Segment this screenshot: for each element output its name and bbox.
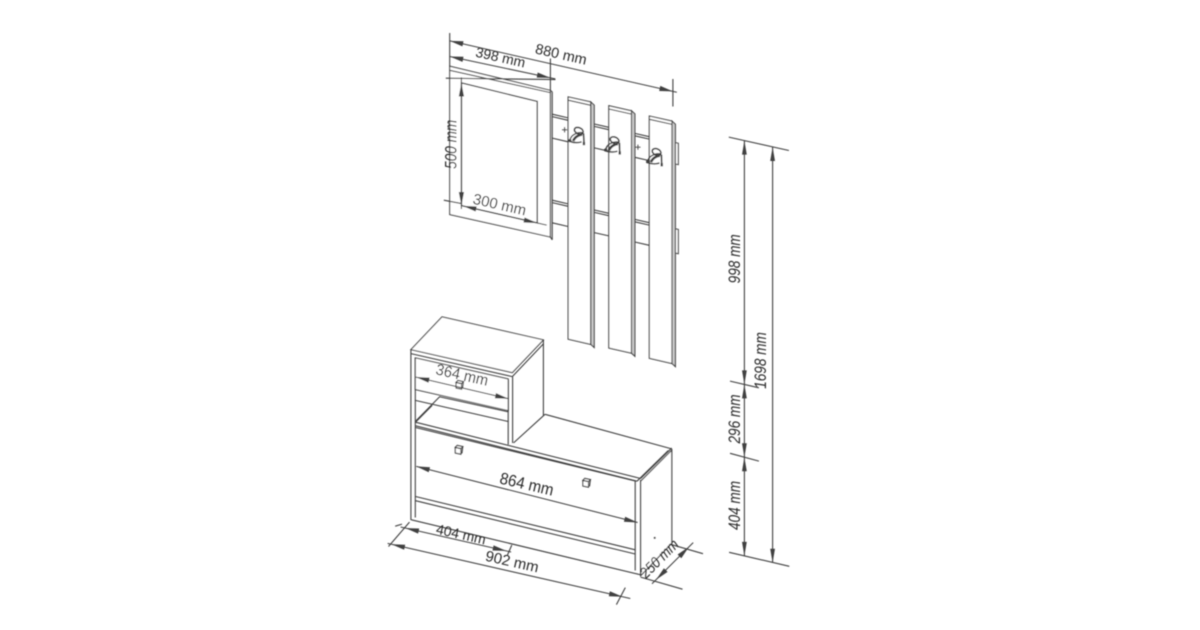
svg-text:404 mm: 404 mm [726,481,745,530]
svg-text:296 mm: 296 mm [726,394,745,444]
svg-text:1698 mm: 1698 mm [752,332,771,389]
svg-text:500 mm: 500 mm [442,120,461,169]
svg-text:998 mm: 998 mm [726,234,745,283]
